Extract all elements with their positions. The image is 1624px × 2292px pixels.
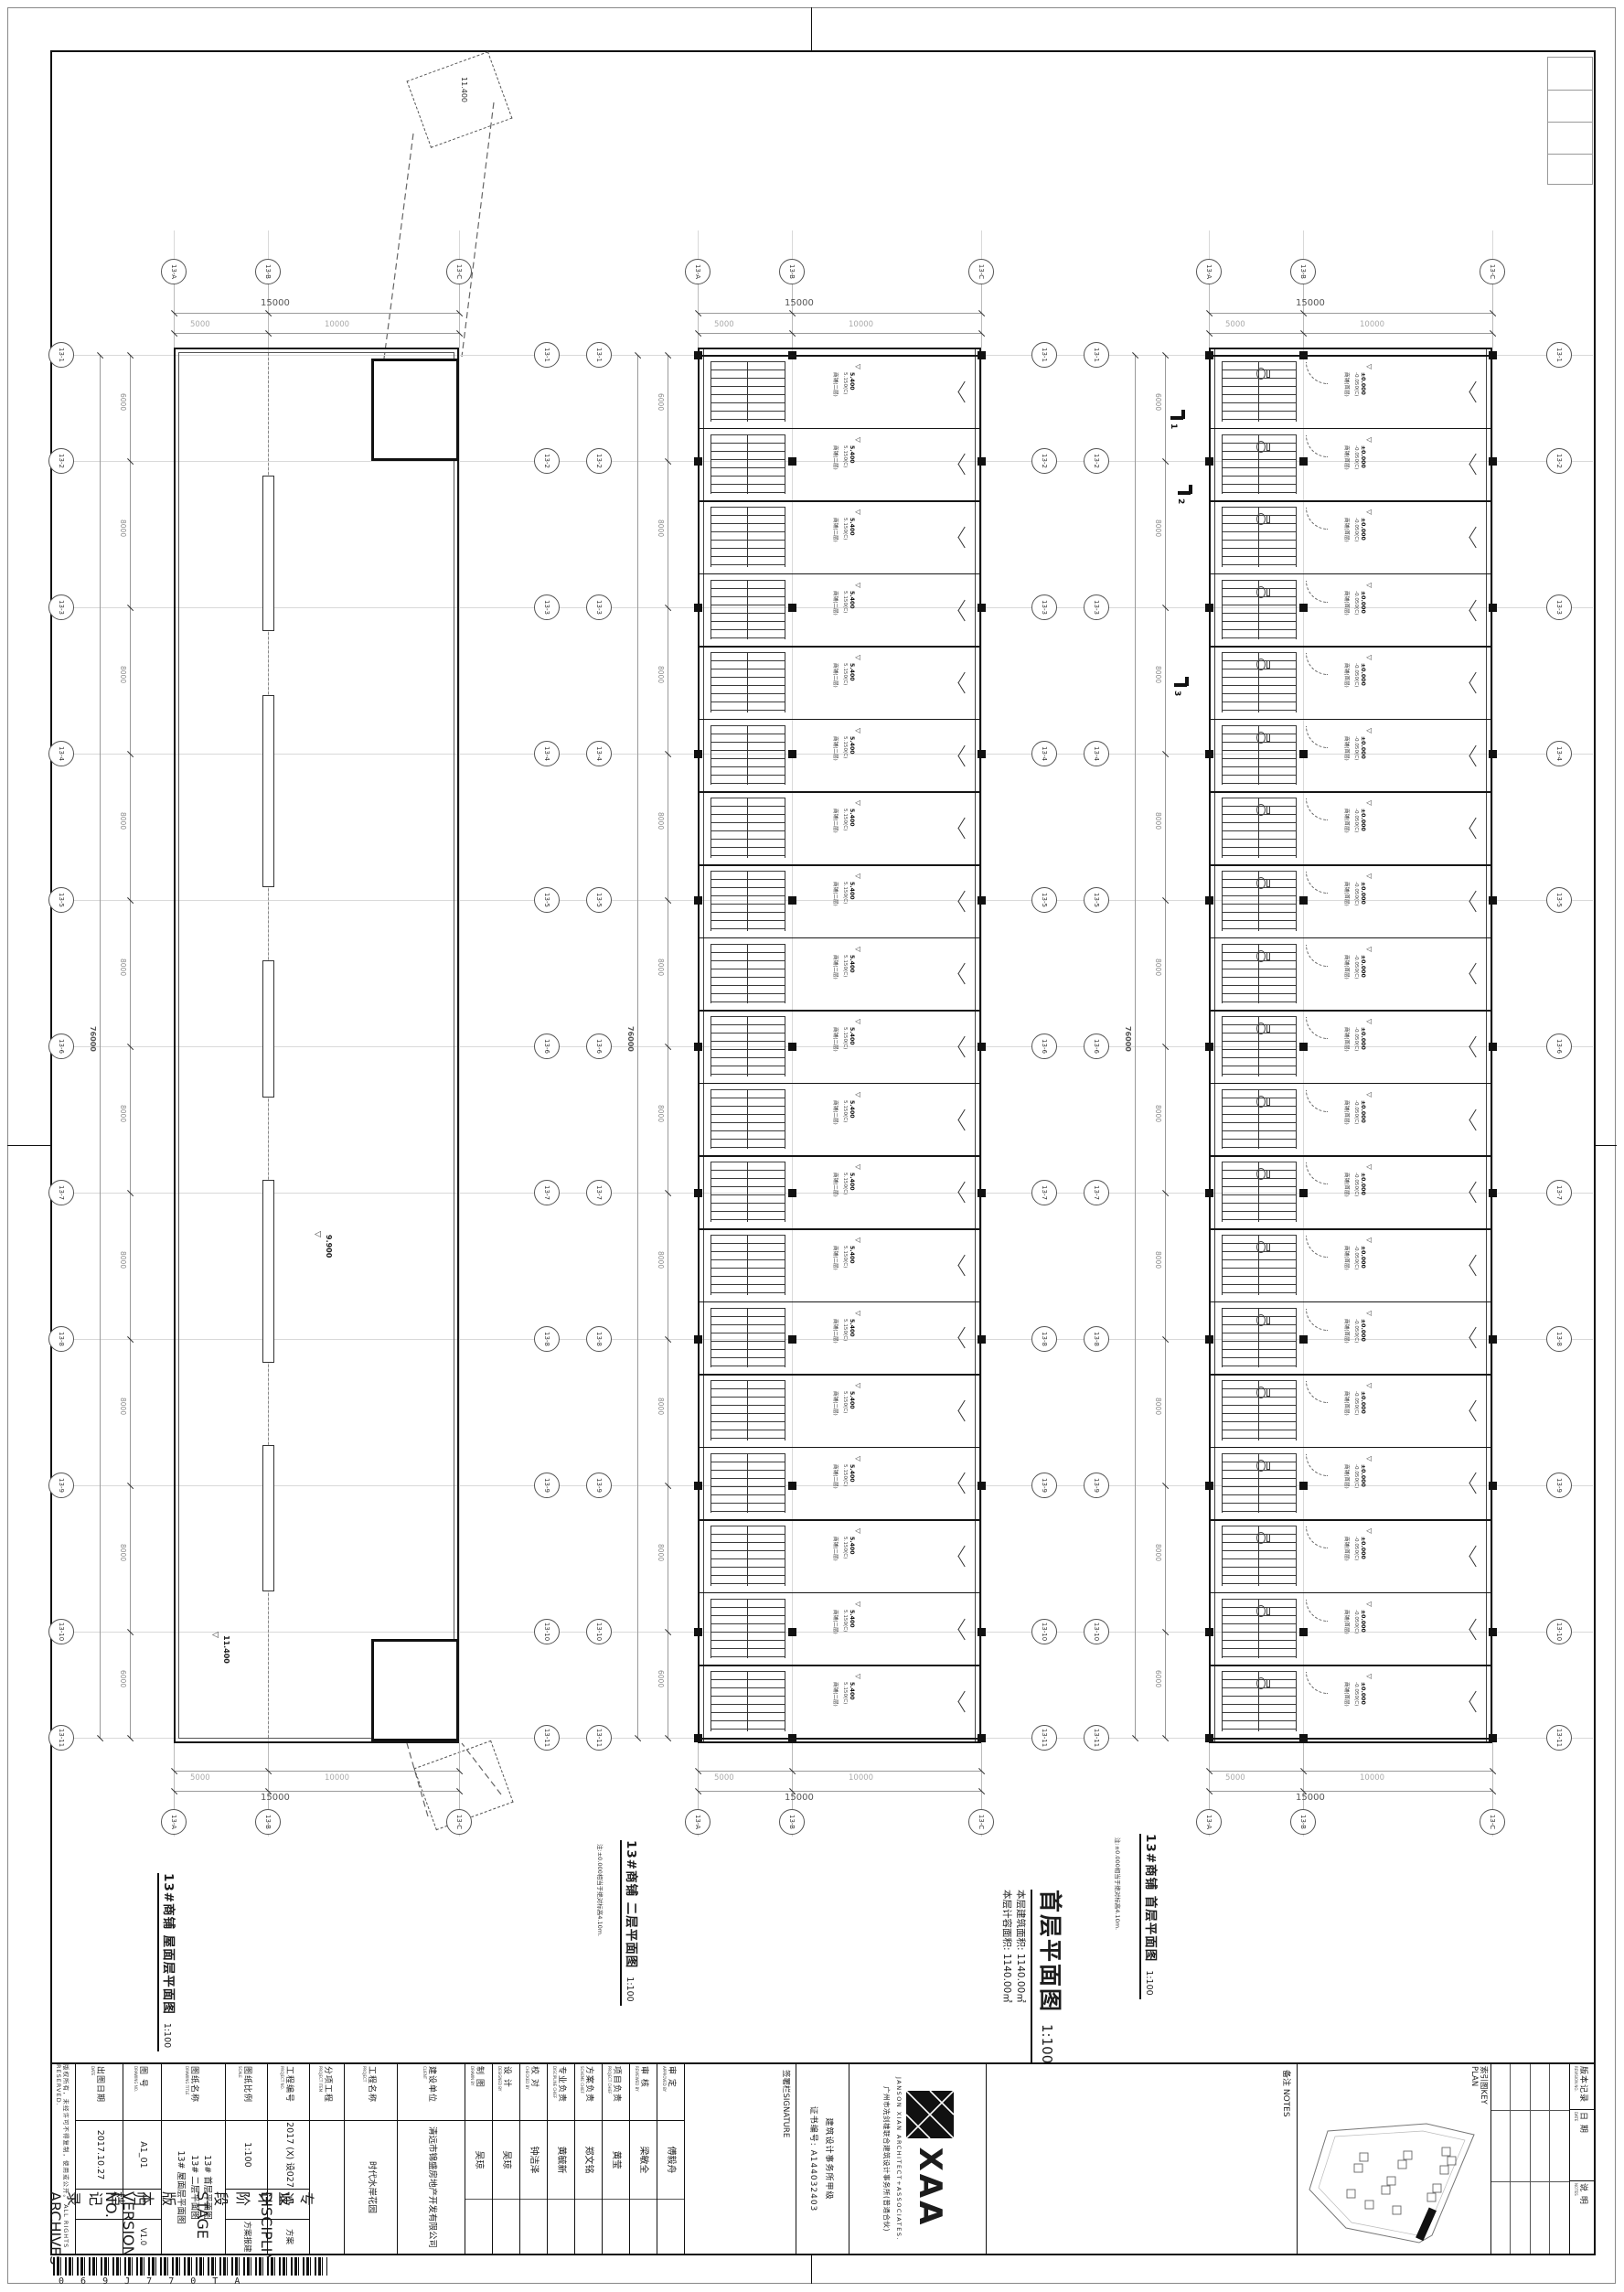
column — [694, 1482, 702, 1490]
grid-bubble: 13-A — [161, 259, 187, 284]
level-triangle: ▽ — [854, 509, 862, 515]
party-wall — [1211, 1155, 1490, 1157]
grid-bubble: 13-B — [1290, 259, 1316, 284]
label: 8000 — [119, 666, 127, 683]
stair-bulkhead — [371, 359, 459, 461]
unit-level-1: ±0.000 — [1360, 372, 1366, 395]
grid-bubble: 13-A — [685, 1809, 710, 1835]
unit-level-2: -0.050(C) — [1353, 955, 1359, 979]
grid-bubble-label: 13-7 — [1093, 1185, 1100, 1200]
grid-bubble-label: 13-2 — [1041, 454, 1048, 468]
unit-stair — [710, 652, 785, 712]
dim-total-line — [1135, 355, 1136, 1738]
toilet-tank — [1266, 952, 1270, 960]
party-wall — [1211, 791, 1490, 793]
unit-room-label: 商铺(首层) — [1343, 663, 1351, 688]
grid-bubble: 13-1 — [48, 342, 74, 368]
party-wall — [1211, 1738, 1490, 1740]
label: 6000 — [657, 1670, 665, 1687]
unit-room-label: 商铺(首层) — [1343, 1610, 1351, 1634]
unit-level-1: 5.400 — [849, 1391, 855, 1409]
party-wall — [1211, 719, 1490, 721]
bubble-leader — [459, 284, 460, 348]
unit-stair — [710, 1671, 785, 1731]
unit-level-1: 5.400 — [849, 1173, 855, 1191]
level-triangle: ▽ — [1365, 873, 1373, 879]
column — [1299, 896, 1308, 905]
label: 6000 — [119, 1670, 127, 1687]
unit-level-1: 5.400 — [849, 1610, 855, 1628]
stair-rail — [747, 725, 748, 786]
section-label: 2 — [1176, 498, 1185, 504]
grid-bubble: 13-1 — [586, 342, 612, 368]
stair-rail — [747, 1162, 748, 1222]
label: 8000 — [657, 666, 665, 683]
grid-bubble: 13-5 — [1546, 887, 1572, 913]
grid-bubble: 13-1 — [1546, 342, 1572, 368]
dim-total-label: 15000 — [785, 298, 814, 308]
party-wall — [1211, 1301, 1490, 1303]
column — [694, 1335, 702, 1344]
column — [978, 750, 986, 758]
unit-room-label: 商铺(首层) — [1343, 1100, 1351, 1125]
toilet-tank — [1266, 1388, 1270, 1397]
dim-total-label: 15000 — [1296, 1793, 1325, 1803]
dim-total-line — [174, 1791, 459, 1792]
grid-bubble: 13-4 — [48, 741, 74, 766]
grid-bubble: 13-7 — [1084, 1180, 1109, 1205]
column — [1489, 604, 1497, 612]
grid-bubble-label: 13-A — [170, 264, 177, 279]
unit-level-1: ±0.000 — [1360, 445, 1366, 468]
column — [694, 750, 702, 758]
column — [1489, 1335, 1497, 1344]
grid-bubble: 13-2 — [1084, 448, 1109, 474]
grid-bubble-label: 13-9 — [595, 1478, 603, 1493]
rooflight-strip — [262, 695, 274, 887]
roof-level-label: 9.900 — [325, 1235, 333, 1258]
grid-bubble-label: 13-5 — [1555, 893, 1563, 907]
grid-bubble-label: 13-7 — [543, 1185, 550, 1200]
unit-level-2: -0.050(C) — [1353, 372, 1359, 396]
grid-bubble-label: 13-10 — [1555, 1623, 1563, 1641]
grid-bubble-label: 13-11 — [595, 1729, 603, 1747]
level-triangle: ▽ — [854, 1456, 862, 1462]
unit-stair — [710, 725, 785, 786]
grid-bubble: 13-A — [685, 259, 710, 284]
level-triangle: ▽ — [854, 1528, 862, 1534]
construction-line-v — [459, 230, 460, 1837]
grid-bubble-label: 13-2 — [595, 454, 603, 468]
unit-level-1: 5.400 — [849, 1246, 855, 1264]
dim-label: 10000 — [849, 1773, 873, 1783]
label: 8000 — [1154, 812, 1162, 830]
unit-level-2: 5.150(C) — [842, 445, 848, 467]
column — [1299, 750, 1308, 758]
unit-level-2: -0.050(C) — [1353, 1246, 1359, 1269]
party-wall — [700, 864, 979, 866]
grid-bubble: 13-7 — [586, 1180, 612, 1205]
column — [1489, 1482, 1497, 1490]
column — [1205, 750, 1213, 758]
grid-bubble-label: 13-C — [455, 264, 463, 279]
label: 6000 — [1154, 1670, 1162, 1687]
grid-bubble: 13-4 — [1031, 741, 1057, 766]
unit-level-1: 5.400 — [849, 1464, 855, 1483]
unit-room-label: 商铺(首层) — [1343, 809, 1351, 833]
dim-total-line — [698, 313, 981, 314]
dim-total-line — [100, 355, 101, 1738]
toilet-tank — [1266, 879, 1270, 887]
unit-level-1: ±0.000 — [1360, 1391, 1366, 1414]
grid-bubble: 13-4 — [1084, 741, 1109, 766]
dim-label: 5000 — [1225, 1773, 1245, 1783]
level-triangle: ▽ — [1365, 364, 1373, 370]
plans-layer: 13-113-113-213-213-313-313-413-413-513-5… — [0, 0, 1624, 2292]
level-triangle: ▽ — [854, 1092, 862, 1098]
unit-room-label: 商铺(首层) — [1343, 736, 1351, 761]
unit-level-1: 5.400 — [849, 445, 855, 464]
grid-bubble-label: 13-7 — [595, 1185, 603, 1200]
section-mark — [1181, 410, 1185, 419]
unit-room-label: 商铺(二层) — [832, 1464, 839, 1489]
unit-room-label: 商铺(二层) — [832, 518, 839, 542]
label: 8000 — [657, 959, 665, 976]
unit-level-1: ±0.000 — [1360, 518, 1366, 541]
unit-room-label: 商铺(二层) — [832, 445, 839, 470]
party-wall — [1211, 573, 1490, 575]
stair-rail — [747, 1016, 748, 1076]
grid-bubble: 13-6 — [1084, 1034, 1109, 1059]
column — [978, 604, 986, 612]
grid-bubble-label: 13-1 — [1555, 348, 1563, 362]
party-wall — [700, 573, 979, 575]
level-triangle: ▽ — [854, 1383, 862, 1388]
toilet-tank — [1266, 1534, 1270, 1542]
party-wall — [1211, 428, 1490, 430]
grid-bubble-label: 13-11 — [1041, 1729, 1048, 1747]
unit-room-label: 商铺(首层) — [1343, 445, 1351, 470]
bubble-leader — [174, 1743, 175, 1809]
unit-level-2: -0.050(C) — [1353, 445, 1359, 469]
column — [788, 1628, 796, 1636]
party-wall — [1211, 1447, 1490, 1449]
unit-level-2: -0.050(C) — [1353, 882, 1359, 905]
grid-bubble-label: 13-B — [788, 264, 796, 279]
grid-bubble: 13-8 — [534, 1326, 560, 1352]
unit-level-1: 5.400 — [849, 663, 855, 681]
bubble-leader — [1209, 1743, 1210, 1809]
unit-stair — [710, 1599, 785, 1659]
column — [1489, 1189, 1497, 1197]
unit-room-label: 商铺(二层) — [832, 1246, 839, 1270]
grid-bubble: 13-9 — [1084, 1473, 1109, 1498]
bubble-leader — [1209, 284, 1210, 348]
grid-bubble: 13-8 — [48, 1326, 74, 1352]
stair-bulkhead — [371, 1639, 459, 1741]
level-triangle: ▽ — [854, 437, 862, 443]
unit-stair — [710, 361, 785, 422]
grid-bubble-label: 13-3 — [543, 600, 550, 615]
level-triangle: ▽ — [854, 947, 862, 952]
label: 8000 — [657, 812, 665, 830]
stair-rail — [747, 652, 748, 712]
column — [694, 1189, 702, 1197]
bubble-leader — [268, 284, 269, 348]
unit-level-2: 5.150(C) — [842, 1464, 848, 1486]
unit-stair — [710, 1089, 785, 1150]
unit-room-label: 商铺(二层) — [832, 955, 839, 980]
section-label: 3 — [1172, 691, 1181, 696]
unit-level-1: ±0.000 — [1360, 955, 1366, 978]
frame-centre-tick — [7, 1145, 50, 1146]
level-triangle: ▽ — [1365, 1383, 1373, 1388]
grid-bubble-label: 13-1 — [58, 348, 65, 362]
grid-bubble: 13-5 — [1031, 887, 1057, 913]
grid-bubble: 13-3 — [1546, 594, 1572, 620]
grid-bubble-label: 13-4 — [595, 746, 603, 761]
grid-bubble: 13-6 — [48, 1034, 74, 1059]
unit-level-1: ±0.000 — [1360, 663, 1366, 686]
column — [788, 1189, 796, 1197]
unit-stair — [710, 580, 785, 640]
toilet-tank — [1266, 370, 1270, 378]
toilet-tank — [1266, 734, 1270, 742]
rooflight-strip — [262, 1180, 274, 1363]
unit-level-1: 5.400 — [849, 591, 855, 609]
grid-bubble-label: 13-B — [1299, 1815, 1307, 1829]
unit-level-1: ±0.000 — [1360, 591, 1366, 614]
grid-bubble-label: 13-B — [264, 1815, 272, 1829]
frame-centre-tick — [811, 7, 812, 50]
column — [788, 896, 796, 905]
toilet-bowl — [1256, 1096, 1266, 1108]
grid-bubble: 13-5 — [534, 887, 560, 913]
stair-rail — [747, 434, 748, 495]
party-wall — [700, 1374, 979, 1376]
bubble-leader — [698, 284, 699, 348]
level-triangle: ▽ — [854, 364, 862, 370]
unit-level-1: ±0.000 — [1360, 1537, 1366, 1559]
grid-bubble-label: 13-4 — [1093, 746, 1100, 761]
column — [1205, 896, 1213, 905]
dim-label: 10000 — [1360, 320, 1384, 329]
roof-parapet-line — [178, 352, 454, 1739]
column — [1299, 1043, 1308, 1051]
level-triangle: ▽ — [1365, 583, 1373, 588]
unit-stair — [710, 1380, 785, 1441]
grid-bubble: 13-6 — [1031, 1034, 1057, 1059]
unit-level-1: 5.400 — [849, 1682, 855, 1700]
party-wall — [1211, 937, 1490, 939]
dim-total-label: 76000 — [626, 1026, 635, 1052]
grid-bubble: 13-8 — [1031, 1326, 1057, 1352]
unit-stair — [710, 1308, 785, 1368]
dim-label: 10000 — [325, 320, 349, 329]
stair-rail — [747, 1671, 748, 1731]
grid-bubble: 13-1 — [1031, 342, 1057, 368]
bubble-leader — [698, 1743, 699, 1809]
column — [978, 1189, 986, 1197]
level-triangle: ▽ — [854, 1019, 862, 1024]
column — [694, 896, 702, 905]
wall-inner-line — [1214, 349, 1215, 1741]
frame-centre-tick — [811, 2255, 812, 2284]
grid-bubble-label: 13-10 — [543, 1623, 550, 1641]
unit-level-2: 5.150(C) — [842, 372, 848, 394]
unit-stair — [710, 507, 785, 567]
unit-level-2: -0.050(C) — [1353, 1391, 1359, 1415]
grid-bubble: 13-7 — [1031, 1180, 1057, 1205]
bubble-leader — [1492, 1743, 1493, 1809]
unit-level-1: ±0.000 — [1360, 1610, 1366, 1633]
unit-level-1: ±0.000 — [1360, 1100, 1366, 1123]
grid-bubble: 13-7 — [48, 1180, 74, 1205]
column — [788, 750, 796, 758]
party-wall — [1211, 1592, 1490, 1594]
column — [1205, 604, 1213, 612]
grid-bubble: 13-1 — [534, 342, 560, 368]
unit-level-1: 5.400 — [849, 1537, 855, 1555]
grid-bubble-label: 13-9 — [1093, 1478, 1100, 1493]
unit-level-2: 5.150(C) — [842, 955, 848, 977]
level-triangle: ▽ — [1365, 1456, 1373, 1462]
grid-bubble-label: 13-4 — [543, 746, 550, 761]
unit-level-1: ±0.000 — [1360, 882, 1366, 905]
unit-level-1: ±0.000 — [1360, 1464, 1366, 1487]
party-wall — [700, 791, 979, 793]
rooflight-strip — [262, 1445, 274, 1591]
column — [1299, 1335, 1308, 1344]
bubble-leader — [1303, 284, 1304, 348]
column — [1299, 1189, 1308, 1197]
unit-room-label: 商铺(二层) — [832, 1682, 839, 1707]
level-triangle: ▽ — [1365, 655, 1373, 660]
grid-bubble: 13-C — [446, 1809, 472, 1835]
unit-level-2: -0.050(C) — [1353, 1319, 1359, 1343]
grid-bubble: 13-2 — [586, 448, 612, 474]
grid-bubble-label: 13-1 — [595, 348, 603, 362]
unit-room-label: 商铺(二层) — [832, 663, 839, 688]
bubble-leader — [981, 284, 982, 348]
grid-bubble-label: 13-8 — [58, 1332, 65, 1346]
grid-bubble-label: 13-C — [978, 1815, 985, 1829]
grid-bubble: 13-10 — [586, 1619, 612, 1644]
column — [1205, 1043, 1213, 1051]
unit-level-2: 5.150(C) — [842, 1246, 848, 1268]
unit-room-label: 商铺(首层) — [1343, 882, 1351, 906]
grid-bubble-label: 13-B — [1299, 264, 1307, 279]
dim-chain-line — [698, 1771, 981, 1772]
unit-room-label: 商铺(二层) — [832, 1391, 839, 1416]
party-wall — [700, 1228, 979, 1230]
level-triangle: ▽ — [854, 728, 862, 734]
unit-level-1: 5.400 — [849, 1027, 855, 1045]
column — [694, 1628, 702, 1636]
grid-bubble: 13-8 — [1084, 1326, 1109, 1352]
stair-rail — [747, 1453, 748, 1514]
bubble-leader — [792, 284, 793, 348]
unit-room-label: 商铺(首层) — [1343, 1682, 1351, 1707]
label: 8000 — [1154, 1105, 1162, 1122]
party-wall — [1211, 1665, 1490, 1666]
storefront-line — [975, 349, 976, 1741]
unit-level-2: 5.150(C) — [842, 1391, 848, 1413]
unit-room-label: 商铺(首层) — [1343, 1319, 1351, 1344]
grid-bubble: 13-A — [1196, 1809, 1222, 1835]
label: 8000 — [1154, 1544, 1162, 1561]
grid-bubble: 13-10 — [48, 1619, 74, 1644]
label: 8000 — [119, 959, 127, 976]
party-wall — [1211, 500, 1490, 502]
stair-rail — [747, 798, 748, 858]
label: 8000 — [119, 1105, 127, 1122]
grid-bubble: 13-11 — [1546, 1725, 1572, 1751]
grid-bubble: 13-8 — [586, 1326, 612, 1352]
party-wall — [1211, 1228, 1490, 1230]
toilet-bowl — [1256, 368, 1266, 380]
grid-bubble-label: 13-4 — [58, 746, 65, 761]
grid-bubble-label: 13-C — [1489, 264, 1496, 279]
grid-bubble: 13-10 — [1546, 1619, 1572, 1644]
column — [978, 1335, 986, 1344]
grid-bubble-label: 13-8 — [1041, 1332, 1048, 1346]
unit-level-1: 5.400 — [849, 372, 855, 391]
dim-label: 5000 — [714, 320, 734, 329]
unit-level-1: 5.400 — [849, 882, 855, 900]
column — [1205, 457, 1213, 466]
level-triangle: ▽ — [1365, 1528, 1373, 1534]
dim-total-line — [1209, 1791, 1492, 1792]
level-triangle: ▽ — [1365, 1601, 1373, 1607]
stair-rail — [747, 1526, 748, 1586]
grid-bubble-label: 13-3 — [58, 600, 65, 615]
dim-total-label: 15000 — [1296, 298, 1325, 308]
unit-level-2: 5.150(C) — [842, 1173, 848, 1194]
stair-rail — [747, 580, 748, 640]
grid-bubble: 13-11 — [48, 1725, 74, 1751]
grid-bubble: 13-B — [255, 259, 281, 284]
label: 8000 — [119, 1251, 127, 1269]
unit-level-2: -0.050(C) — [1353, 1464, 1359, 1488]
grid-bubble: 13-3 — [48, 594, 74, 620]
grid-bubble: 13-1 — [1084, 342, 1109, 368]
section-mark — [1185, 677, 1189, 686]
unit-room-label: 商铺(二层) — [832, 882, 839, 906]
dim-label: 10000 — [849, 320, 873, 329]
grid-bubble-label: 13-A — [170, 1815, 177, 1829]
unit-level-2: 5.150(C) — [842, 809, 848, 830]
unit-level-2: -0.050(C) — [1353, 591, 1359, 615]
unit-room-label: 商铺(二层) — [832, 1610, 839, 1634]
unit-room-label: 商铺(首层) — [1343, 1464, 1351, 1489]
party-wall — [1211, 864, 1490, 866]
grid-bubble-label: 13-8 — [1093, 1332, 1100, 1346]
unit-level-2: 5.150(C) — [842, 1610, 848, 1632]
grid-bubble: 13-6 — [586, 1034, 612, 1059]
toilet-bowl — [1256, 1387, 1266, 1398]
unit-level-1: 5.400 — [849, 1319, 855, 1337]
level-triangle: ▽ — [1365, 1092, 1373, 1098]
grid-bubble: 13-B — [1290, 1809, 1316, 1835]
grid-bubble: 13-9 — [1546, 1473, 1572, 1498]
unit-room-label: 商铺(二层) — [832, 372, 839, 397]
grid-bubble-label: 13-10 — [1093, 1623, 1100, 1641]
grid-bubble: 13-A — [161, 1809, 187, 1835]
unit-stair — [710, 1235, 785, 1295]
unit-room-label: 商铺(二层) — [832, 809, 839, 833]
party-wall — [1211, 1374, 1490, 1376]
